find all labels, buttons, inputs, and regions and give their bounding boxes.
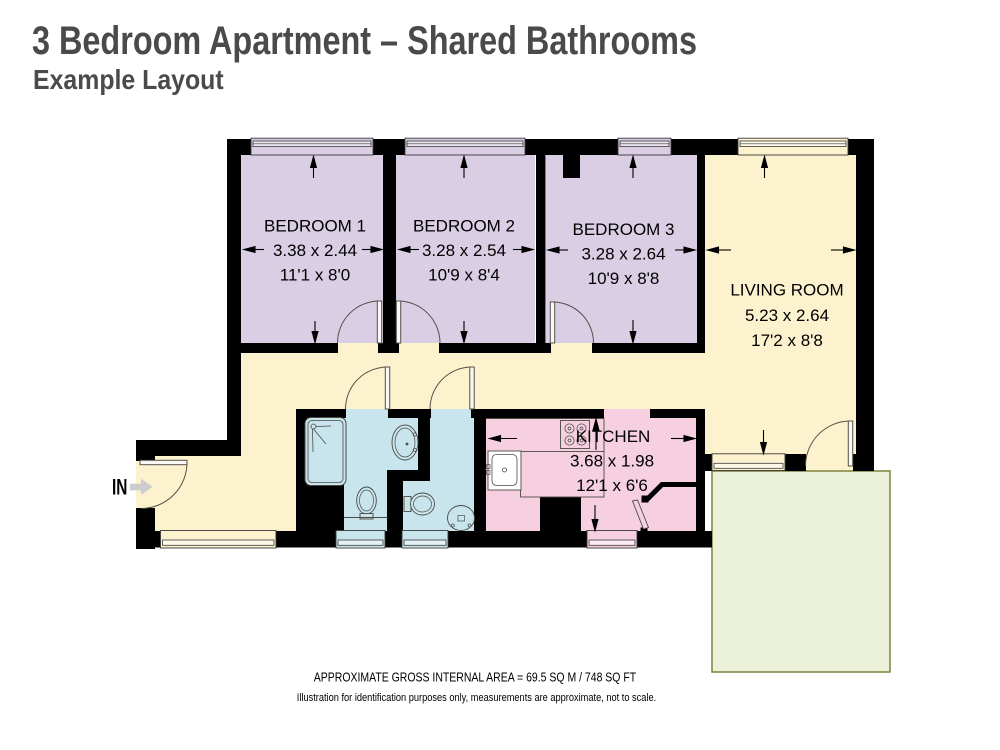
svg-text:3 Bedroom Apartment – Shared B: 3 Bedroom Apartment – Shared Bathrooms	[32, 18, 697, 63]
svg-text:11'1 x 8'0: 11'1 x 8'0	[280, 266, 350, 285]
svg-text:3.28 x 2.54: 3.28 x 2.54	[422, 241, 506, 260]
svg-text:3.68 x 1.98: 3.68 x 1.98	[570, 452, 654, 471]
svg-text:BEDROOM 1: BEDROOM 1	[264, 217, 366, 236]
svg-text:10'9 x 8'8: 10'9 x 8'8	[588, 269, 660, 288]
svg-text:Illustration for identificatio: Illustration for identification purposes…	[297, 692, 656, 704]
svg-text:3.28 x 2.64: 3.28 x 2.64	[581, 245, 665, 264]
svg-text:17'2 x 8'8: 17'2 x 8'8	[751, 331, 823, 350]
svg-text:3.38 x 2.44: 3.38 x 2.44	[273, 241, 357, 260]
svg-text:KITCHEN: KITCHEN	[576, 427, 651, 446]
svg-text:5.23 x 2.64: 5.23 x 2.64	[745, 306, 829, 325]
svg-text:10'9 x 8'4: 10'9 x 8'4	[428, 266, 500, 285]
svg-text:LIVING ROOM: LIVING ROOM	[730, 281, 843, 300]
svg-text:IN: IN	[112, 476, 127, 500]
svg-text:APPROXIMATE GROSS INTERNAL ARE: APPROXIMATE GROSS INTERNAL AREA = 69.5 S…	[314, 671, 636, 685]
svg-text:12'1 x 6'6: 12'1 x 6'6	[576, 476, 648, 495]
svg-text:BEDROOM 2: BEDROOM 2	[413, 217, 515, 236]
svg-text:BEDROOM 3: BEDROOM 3	[572, 220, 674, 239]
svg-text:Example Layout: Example Layout	[33, 64, 224, 96]
